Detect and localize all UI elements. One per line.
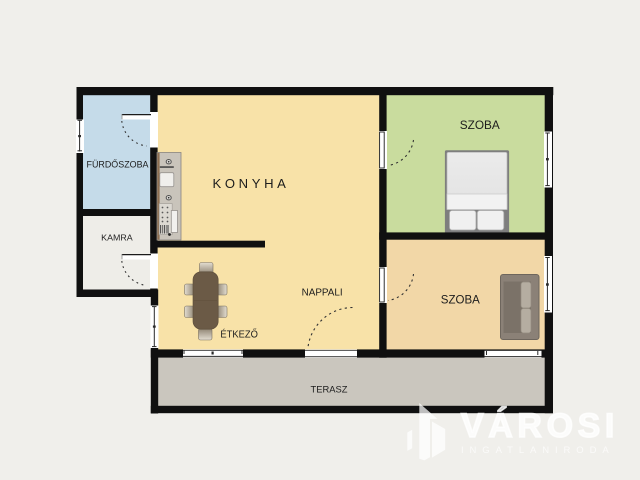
svg-text:SZOBA: SZOBA	[460, 118, 501, 132]
svg-text:FÜRDŐSZOBA: FÜRDŐSZOBA	[87, 160, 149, 170]
svg-text:KONYHA: KONYHA	[213, 177, 290, 191]
svg-text:KAMRA: KAMRA	[101, 233, 133, 243]
svg-text:NAPPALI: NAPPALI	[302, 288, 343, 299]
svg-text:INGATLANIRODA: INGATLANIRODA	[461, 445, 615, 456]
svg-text:ÉTKEZŐ: ÉTKEZŐ	[220, 327, 258, 341]
svg-text:VÁROSI: VÁROSI	[461, 407, 619, 445]
svg-text:TERASZ: TERASZ	[311, 385, 348, 396]
svg-text:SZOBA: SZOBA	[441, 293, 481, 307]
